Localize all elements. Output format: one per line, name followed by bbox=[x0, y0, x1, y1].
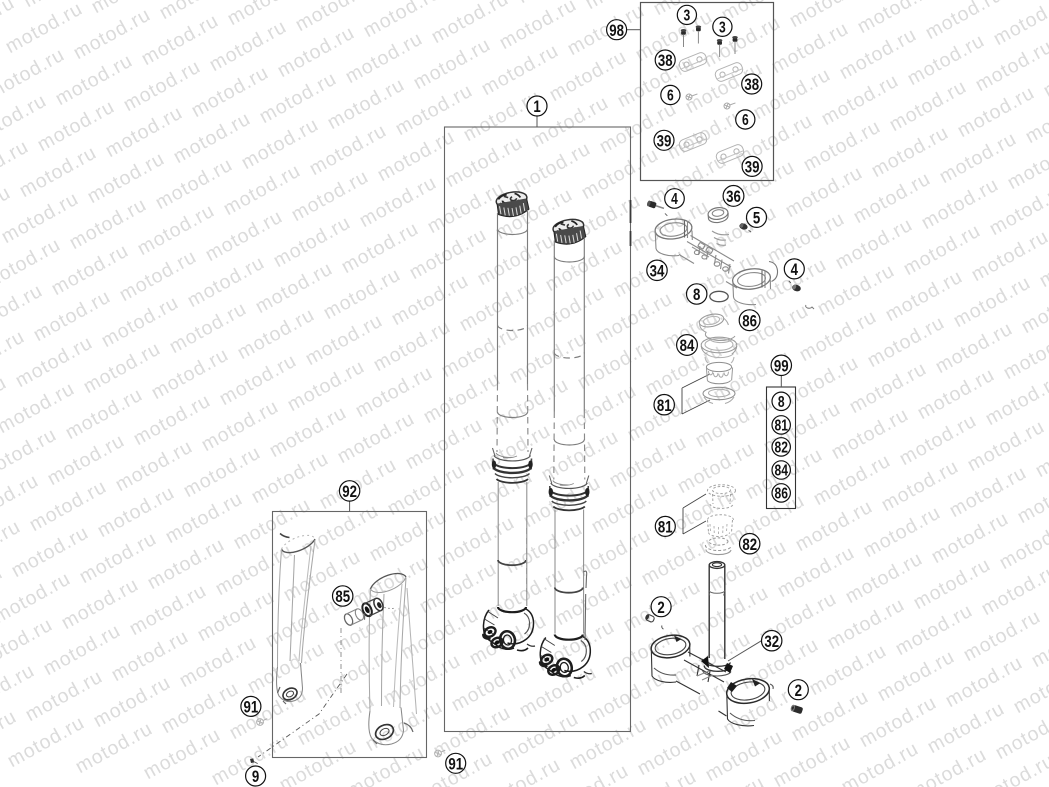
svg-text:34: 34 bbox=[650, 262, 665, 281]
svg-text:6: 6 bbox=[742, 111, 749, 129]
svg-text:4: 4 bbox=[791, 261, 799, 280]
svg-text:38: 38 bbox=[744, 76, 759, 95]
svg-text:82: 82 bbox=[742, 535, 757, 554]
svg-text:91: 91 bbox=[244, 698, 259, 717]
svg-text:4: 4 bbox=[671, 190, 678, 208]
svg-text:8: 8 bbox=[693, 286, 700, 305]
svg-text:84: 84 bbox=[680, 337, 695, 356]
svg-text:86: 86 bbox=[742, 312, 757, 331]
svg-text:98: 98 bbox=[609, 21, 624, 40]
svg-text:6: 6 bbox=[667, 86, 674, 104]
svg-text:32: 32 bbox=[764, 632, 779, 651]
svg-text:82: 82 bbox=[774, 438, 788, 456]
svg-text:39: 39 bbox=[657, 132, 672, 151]
svg-text:8: 8 bbox=[778, 392, 785, 410]
svg-text:85: 85 bbox=[335, 588, 350, 607]
svg-text:5: 5 bbox=[753, 209, 761, 228]
svg-text:2: 2 bbox=[657, 598, 664, 617]
svg-text:84: 84 bbox=[774, 461, 788, 479]
svg-text:81: 81 bbox=[774, 416, 788, 434]
svg-text:81: 81 bbox=[658, 518, 673, 537]
svg-text:3: 3 bbox=[719, 18, 726, 36]
svg-text:92: 92 bbox=[342, 483, 357, 502]
svg-text:1: 1 bbox=[533, 98, 541, 117]
svg-text:91: 91 bbox=[448, 755, 463, 774]
svg-text:86: 86 bbox=[774, 484, 788, 502]
svg-text:99: 99 bbox=[774, 357, 789, 376]
svg-text:81: 81 bbox=[657, 396, 672, 415]
svg-text:9: 9 bbox=[252, 768, 259, 787]
svg-text:36: 36 bbox=[726, 188, 741, 207]
svg-text:3: 3 bbox=[684, 6, 691, 24]
svg-text:39: 39 bbox=[745, 158, 760, 177]
svg-text:2: 2 bbox=[795, 681, 802, 700]
svg-text:38: 38 bbox=[658, 52, 673, 71]
